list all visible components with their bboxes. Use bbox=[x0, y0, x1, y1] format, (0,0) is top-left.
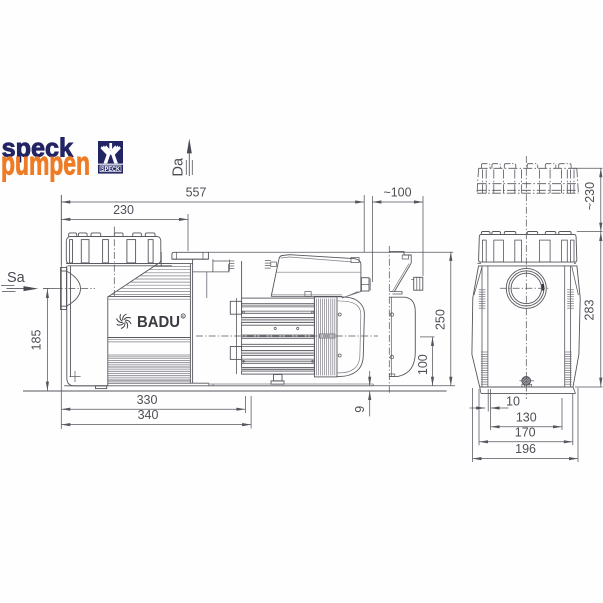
svg-text:BADU: BADU bbox=[137, 314, 180, 331]
svg-text:Sa: Sa bbox=[7, 270, 26, 286]
svg-text:~100: ~100 bbox=[383, 186, 411, 200]
svg-text:283: 283 bbox=[583, 300, 597, 321]
svg-text:250: 250 bbox=[433, 309, 447, 330]
svg-text:R: R bbox=[182, 315, 185, 319]
svg-text:170: 170 bbox=[515, 425, 536, 439]
svg-text:196: 196 bbox=[515, 442, 536, 456]
svg-text:230: 230 bbox=[113, 203, 134, 217]
svg-text:130: 130 bbox=[516, 410, 537, 424]
svg-text:100: 100 bbox=[416, 354, 430, 375]
svg-text:557: 557 bbox=[186, 186, 207, 200]
svg-text:330: 330 bbox=[137, 393, 158, 407]
svg-text:10: 10 bbox=[506, 395, 520, 409]
svg-text:SPECK: SPECK bbox=[101, 167, 121, 173]
svg-text:~230: ~230 bbox=[583, 182, 597, 210]
svg-text:340: 340 bbox=[138, 408, 159, 422]
svg-text:9: 9 bbox=[353, 406, 367, 413]
svg-text:Da: Da bbox=[171, 157, 187, 176]
svg-text:185: 185 bbox=[30, 330, 44, 351]
svg-text:pumpen: pumpen bbox=[1, 144, 90, 181]
